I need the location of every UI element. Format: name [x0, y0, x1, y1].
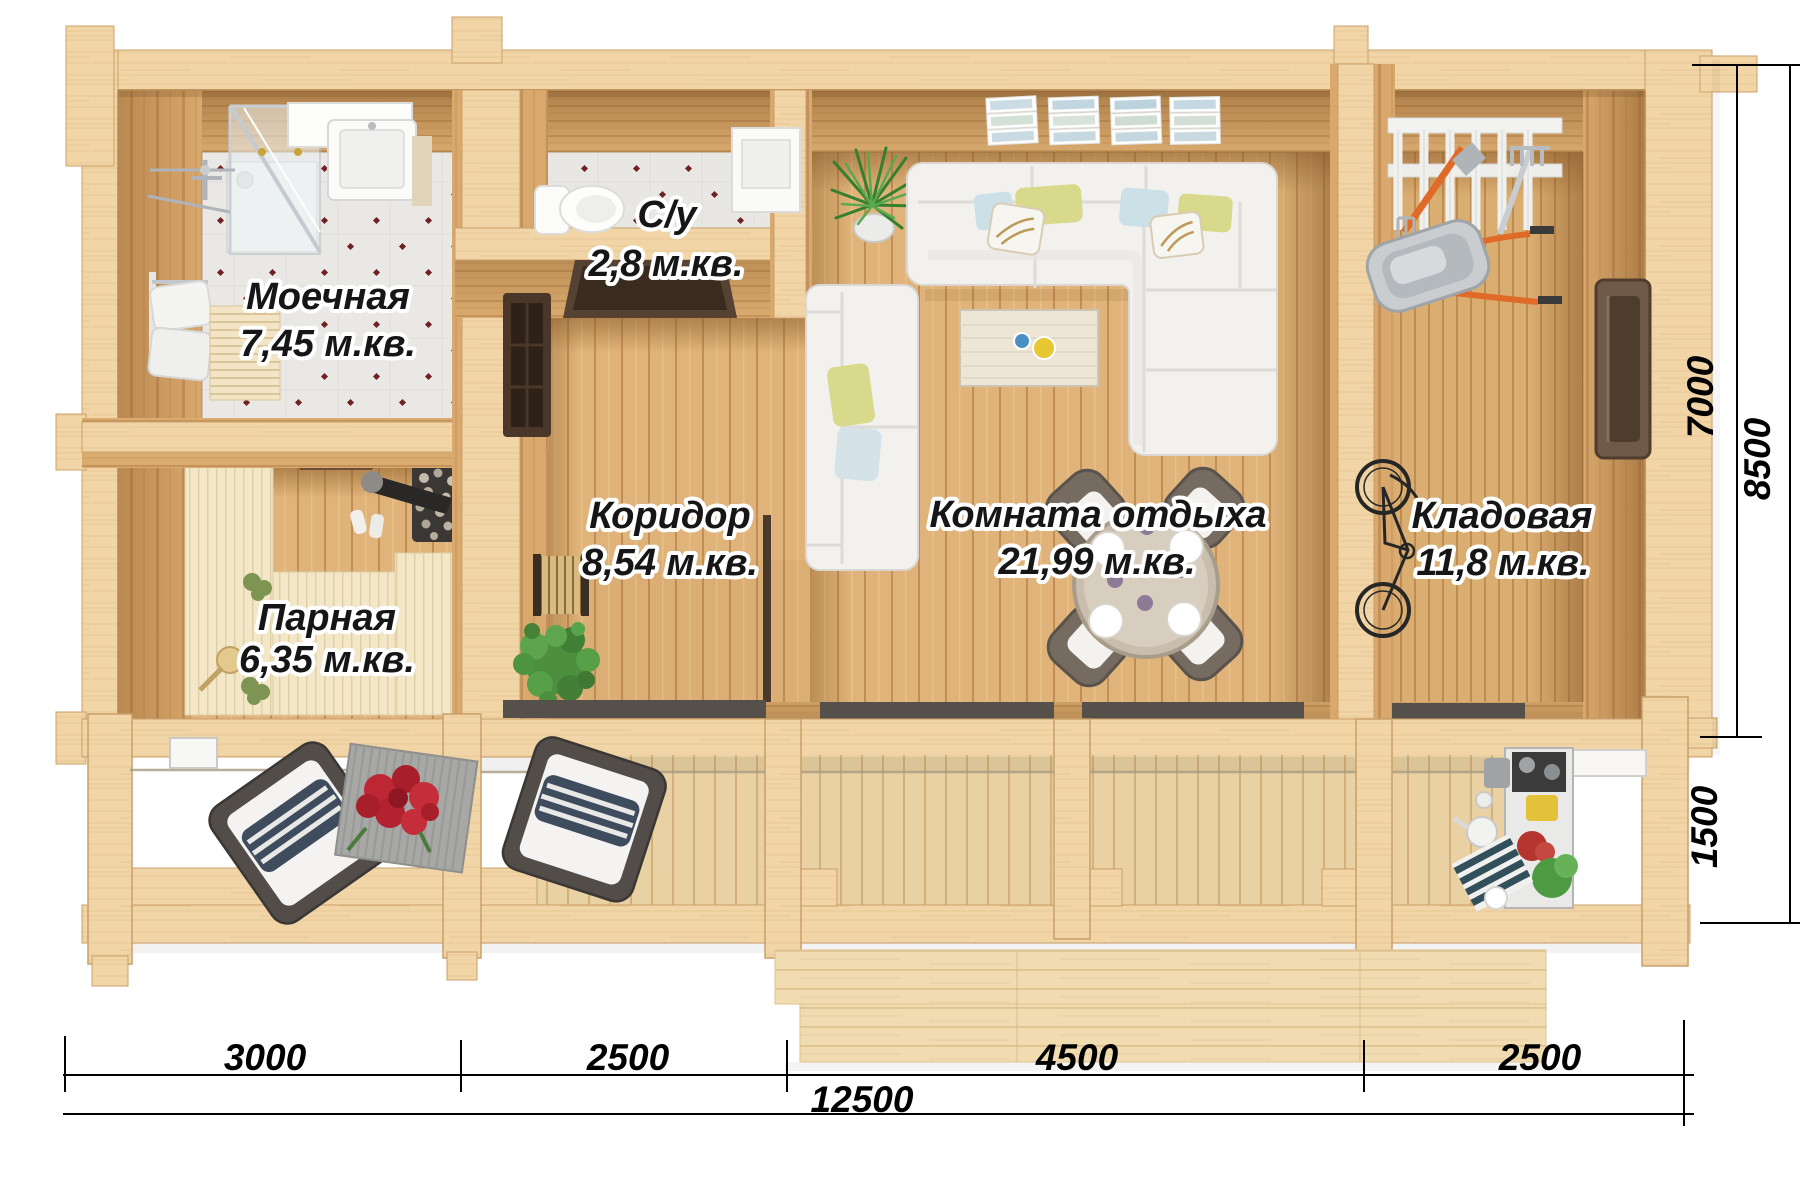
svg-text:6,35 м.кв.: 6,35 м.кв.	[239, 639, 415, 681]
svg-text:Парная: Парная	[258, 597, 396, 639]
svg-text:С/у: С/у	[637, 194, 698, 236]
svg-text:Коридор: Коридор	[589, 495, 750, 537]
svg-text:12500: 12500	[811, 1079, 914, 1120]
svg-text:2500: 2500	[586, 1037, 670, 1078]
svg-text:7,45 м.кв.: 7,45 м.кв.	[240, 323, 416, 365]
svg-text:21,99 м.кв.: 21,99 м.кв.	[997, 541, 1195, 583]
svg-text:11,8 м.кв.: 11,8 м.кв.	[1416, 542, 1589, 584]
svg-text:2,8 м.кв.: 2,8 м.кв.	[588, 243, 744, 285]
svg-text:2500: 2500	[1498, 1037, 1582, 1078]
svg-text:3000: 3000	[224, 1037, 307, 1078]
svg-text:8500: 8500	[1737, 417, 1778, 500]
svg-text:8,54 м.кв.: 8,54 м.кв.	[582, 542, 758, 584]
svg-text:4500: 4500	[1035, 1037, 1119, 1078]
svg-text:Кладовая: Кладовая	[1412, 495, 1593, 537]
svg-text:Моечная: Моечная	[246, 276, 410, 318]
svg-text:1500: 1500	[1684, 785, 1725, 868]
svg-text:7000: 7000	[1680, 355, 1721, 438]
svg-text:Комната отдыха: Комната отдыха	[929, 494, 1266, 536]
